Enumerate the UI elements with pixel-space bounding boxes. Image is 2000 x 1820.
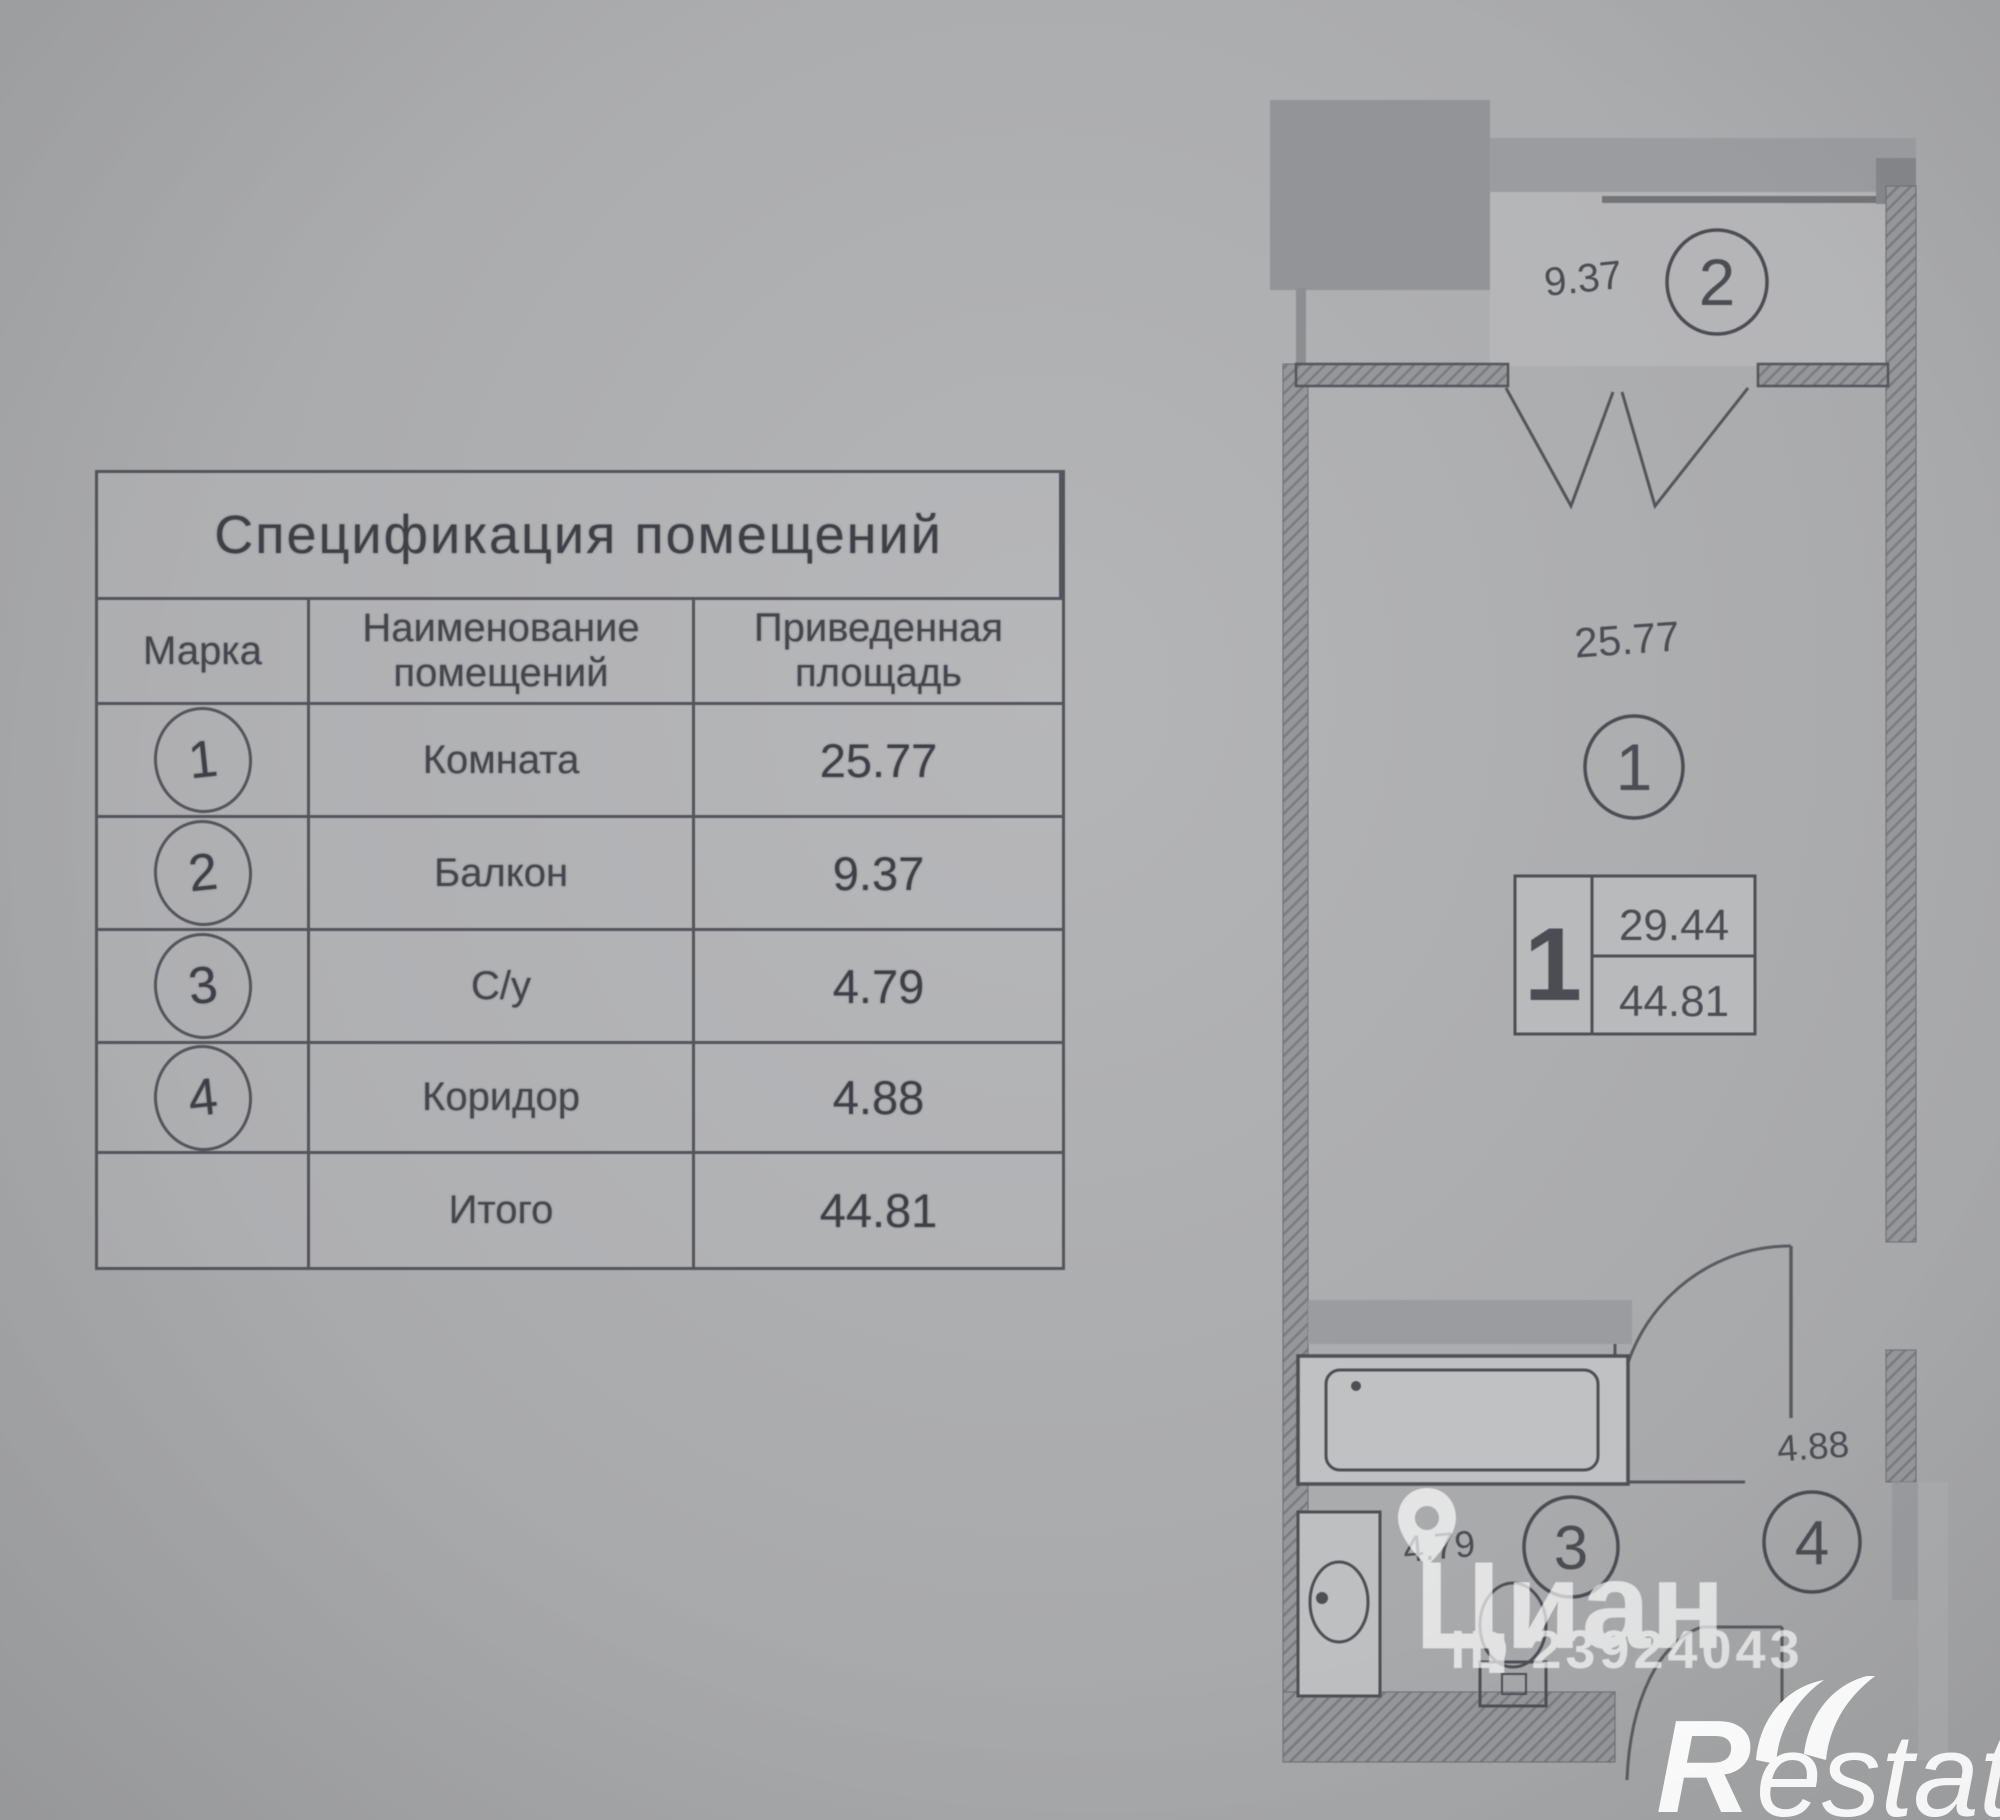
summary-total-area: 44.81 bbox=[1619, 977, 1729, 1026]
floor-plan-drawing: 9.37 2 25.77 1 1 29.44 44.81 4.79 3 4.88… bbox=[1270, 100, 1970, 1800]
window-sill-right bbox=[1758, 364, 1888, 386]
right-wall-below-door bbox=[1886, 1350, 1916, 1482]
balcony-top-wall bbox=[1490, 138, 1916, 192]
table-row-name-cell: С/у bbox=[310, 931, 695, 1044]
table-row-area-cell: 4.88 bbox=[695, 1044, 1062, 1154]
room-mark-badge: 2 bbox=[148, 815, 257, 931]
table-row-total-label: Итого bbox=[310, 1154, 695, 1267]
room-area-label: 25.77 bbox=[1573, 612, 1681, 666]
table-row-name-cell: Комната bbox=[310, 705, 695, 818]
table-row-area-cell: 9.37 bbox=[695, 818, 1062, 931]
table-row-mark-cell-empty bbox=[98, 1154, 310, 1267]
washbasin-tap bbox=[1316, 1592, 1328, 1604]
table-title: Спецификация помещений bbox=[98, 473, 1062, 600]
cian-watermark: Циан ID 23924043 bbox=[1398, 1488, 1804, 1680]
table-row-mark-cell: 3 bbox=[98, 931, 310, 1044]
balcony-mark-number: 2 bbox=[1699, 245, 1736, 319]
table-row-name-cell: Коридор bbox=[310, 1044, 695, 1154]
table-row-area-cell: 4.79 bbox=[695, 931, 1062, 1044]
entrance-door-arc bbox=[1619, 1246, 1791, 1418]
room-mark-badge: 3 bbox=[148, 928, 257, 1044]
balcony-door-leaf-right bbox=[1622, 388, 1748, 506]
window-sill-left bbox=[1296, 364, 1508, 386]
restate-logo-r: R bbox=[1656, 1693, 1751, 1820]
room-mark-number: 1 bbox=[1616, 730, 1653, 804]
balcony-left-wall bbox=[1296, 288, 1306, 370]
column-header-mark: Марка bbox=[98, 600, 310, 705]
restate-logo: R estate bbox=[1652, 1676, 2000, 1820]
cian-id-watermark-text: ID 23924043 bbox=[1450, 1620, 1803, 1680]
bathtub-icon bbox=[1298, 1356, 1628, 1484]
balcony-door-leaf-left bbox=[1506, 388, 1613, 506]
specification-table: Спецификация помещений Марка Наименовани… bbox=[95, 470, 1065, 1270]
table-row-mark-cell: 1 bbox=[98, 705, 310, 818]
column-header-area: Приведенная площадь bbox=[695, 600, 1062, 705]
corridor-area-label: 4.88 bbox=[1776, 1424, 1851, 1470]
table-row-total-area: 44.81 bbox=[695, 1154, 1062, 1267]
restate-logo-text: estate bbox=[1756, 1710, 2000, 1820]
table-row-name-cell: Балкон bbox=[310, 818, 695, 931]
balcony-area-label: 9.37 bbox=[1542, 253, 1624, 305]
bathroom-top-wall bbox=[1308, 1300, 1632, 1344]
summary-rooms-count: 1 bbox=[1524, 907, 1582, 1023]
table-row-area-cell: 25.77 bbox=[695, 705, 1062, 818]
corridor-mark-number: 4 bbox=[1795, 1509, 1829, 1578]
room-mark-badge: 4 bbox=[148, 1040, 257, 1156]
adjacent-structure-block bbox=[1270, 100, 1490, 290]
bathtub-drain bbox=[1351, 1381, 1361, 1391]
column-header-room-name: Наименование помещений bbox=[310, 600, 695, 705]
summary-upper-area: 29.44 bbox=[1619, 901, 1729, 950]
right-wall-upper bbox=[1886, 186, 1916, 1242]
table-row-mark-cell: 4 bbox=[98, 1044, 310, 1154]
room-mark-badge: 1 bbox=[148, 702, 257, 818]
table-row-mark-cell: 2 bbox=[98, 818, 310, 931]
balcony-top-wall-line bbox=[1602, 196, 1888, 203]
photo-of-floor-plan-document: Спецификация помещений Марка Наименовани… bbox=[0, 0, 2000, 1820]
bottom-wall bbox=[1283, 1692, 1615, 1762]
